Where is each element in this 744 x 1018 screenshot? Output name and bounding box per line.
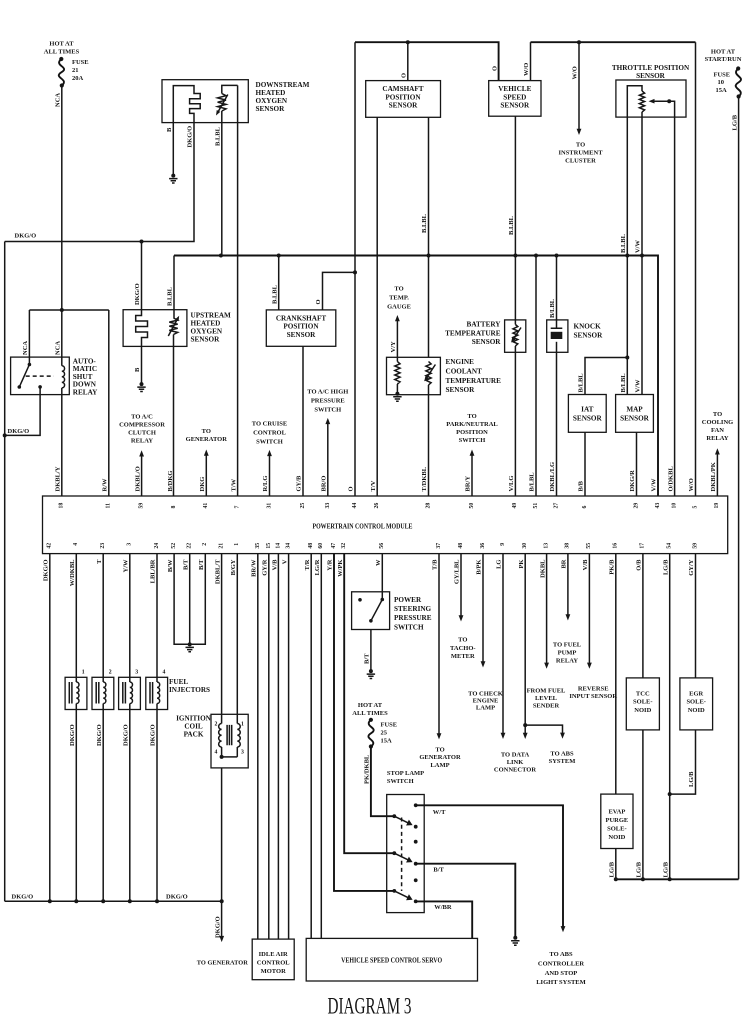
- svg-text:LAMP: LAMP: [430, 762, 449, 769]
- svg-text:TACHO-: TACHO-: [450, 645, 476, 652]
- svg-text:25: 25: [300, 503, 306, 509]
- svg-text:21: 21: [72, 67, 79, 74]
- svg-text:DKBL/Y: DKBL/Y: [55, 466, 62, 491]
- svg-text:T/DKBL: T/DKBL: [421, 466, 428, 491]
- svg-text:COMPRESSOR: COMPRESSOR: [119, 421, 165, 428]
- svg-text:GAUGE: GAUGE: [387, 304, 411, 311]
- svg-text:TO CRUISE: TO CRUISE: [252, 421, 287, 428]
- svg-text:B/GY: B/GY: [230, 559, 237, 575]
- svg-text:IAT: IAT: [581, 406, 593, 414]
- svg-text:POSITION: POSITION: [283, 323, 319, 331]
- svg-text:TEMPERATURE: TEMPERATURE: [446, 377, 502, 385]
- svg-text:15A: 15A: [716, 87, 728, 94]
- svg-text:TO DATA: TO DATA: [501, 751, 530, 758]
- svg-text:29: 29: [633, 503, 639, 509]
- svg-text:SENSOR: SENSOR: [256, 105, 286, 113]
- svg-text:HEATED: HEATED: [191, 320, 221, 328]
- svg-text:STEERING: STEERING: [394, 605, 432, 613]
- svg-text:T/B: T/B: [432, 559, 439, 570]
- svg-text:INPUT SENSOR: INPUT SENSOR: [569, 693, 617, 700]
- svg-text:4: 4: [163, 670, 166, 676]
- svg-text:2: 2: [202, 543, 208, 546]
- svg-text:13: 13: [543, 543, 549, 549]
- svg-text:EVAP: EVAP: [608, 809, 625, 816]
- svg-text:PK/DKBL: PK/DKBL: [364, 754, 371, 784]
- svg-text:21: 21: [218, 543, 224, 549]
- svg-text:1: 1: [82, 670, 85, 676]
- svg-text:42: 42: [47, 543, 53, 549]
- svg-text:W/O: W/O: [523, 63, 530, 76]
- svg-text:PUMP: PUMP: [558, 650, 577, 657]
- svg-text:54: 54: [667, 543, 673, 549]
- svg-text:T/W: T/W: [230, 478, 237, 491]
- svg-text:O/B: O/B: [636, 559, 643, 571]
- svg-text:Y/W: Y/W: [123, 559, 130, 573]
- svg-text:POWER: POWER: [394, 596, 422, 604]
- svg-text:PRESSURE: PRESSURE: [394, 614, 432, 622]
- svg-text:LG/B: LG/B: [662, 559, 669, 575]
- svg-text:CONTROLLER: CONTROLLER: [538, 960, 585, 967]
- svg-text:36: 36: [480, 543, 486, 549]
- svg-text:CONTROL: CONTROL: [253, 430, 287, 437]
- svg-text:POSITION: POSITION: [385, 93, 421, 101]
- svg-text:FROM FUEL: FROM FUEL: [527, 688, 566, 695]
- svg-text:W: W: [375, 559, 382, 566]
- svg-text:B.LBL: B.LBL: [215, 126, 222, 146]
- svg-text:GENERATOR: GENERATOR: [419, 754, 461, 761]
- svg-text:B/T: B/T: [182, 559, 189, 570]
- svg-text:52: 52: [171, 543, 177, 549]
- svg-text:PRESSURE: PRESSURE: [311, 397, 345, 404]
- svg-text:FUSE: FUSE: [381, 721, 398, 728]
- svg-text:TO: TO: [467, 413, 476, 420]
- svg-text:TEMP.: TEMP.: [389, 295, 409, 302]
- svg-text:B: B: [166, 127, 173, 132]
- svg-text:SPEED: SPEED: [503, 93, 526, 101]
- svg-text:O/DKBL: O/DKBL: [667, 466, 674, 492]
- svg-text:SENSOR: SENSOR: [573, 414, 603, 422]
- svg-text:DKG/O: DKG/O: [123, 724, 130, 746]
- svg-text:59: 59: [692, 543, 698, 549]
- svg-text:BR: BR: [561, 559, 568, 568]
- svg-text:23: 23: [100, 543, 106, 549]
- svg-text:43: 43: [655, 503, 661, 509]
- svg-text:B/LBL: B/LBL: [620, 373, 627, 393]
- svg-text:B.LBL: B.LBL: [271, 284, 278, 304]
- svg-text:B/LBL: B/LBL: [578, 373, 585, 393]
- svg-text:27: 27: [553, 503, 559, 509]
- svg-text:R/W: R/W: [102, 478, 109, 492]
- svg-text:B/PK: B/PK: [476, 560, 483, 575]
- svg-text:DKBL/T: DKBL/T: [214, 559, 221, 584]
- svg-text:26: 26: [374, 503, 380, 509]
- svg-text:DKG/O: DKG/O: [96, 724, 103, 746]
- svg-text:W/O: W/O: [688, 478, 695, 491]
- svg-text:BR/O: BR/O: [321, 476, 328, 492]
- svg-text:CRANKSHAFT: CRANKSHAFT: [276, 315, 327, 323]
- svg-text:B.LBL: B.LBL: [421, 213, 428, 233]
- svg-text:34: 34: [286, 543, 292, 549]
- svg-text:TO: TO: [576, 142, 585, 149]
- svg-text:GY/LBL: GY/LBL: [454, 559, 461, 584]
- svg-text:LIGHT SYSTEM: LIGHT SYSTEM: [536, 979, 586, 986]
- svg-text:DOWN: DOWN: [73, 381, 97, 389]
- svg-text:INSTRUMENT: INSTRUMENT: [558, 150, 603, 157]
- svg-text:REVERSE: REVERSE: [578, 685, 609, 692]
- svg-text:NCA: NCA: [55, 341, 62, 355]
- svg-text:GENERATOR: GENERATOR: [186, 436, 228, 443]
- svg-text:B/LBL: B/LBL: [529, 472, 536, 492]
- svg-text:37: 37: [436, 543, 442, 549]
- svg-text:LG/B: LG/B: [731, 114, 738, 130]
- svg-text:DKG/O: DKG/O: [69, 724, 76, 746]
- svg-text:25: 25: [381, 729, 388, 736]
- svg-text:B.LBL: B.LBL: [620, 233, 627, 253]
- svg-text:B/T: B/T: [198, 559, 205, 570]
- svg-text:PURGE: PURGE: [606, 817, 629, 824]
- svg-text:PARK/NEUTRAL: PARK/NEUTRAL: [446, 421, 498, 428]
- svg-text:HOT AT: HOT AT: [711, 48, 736, 55]
- svg-text:V/B: V/B: [271, 559, 278, 571]
- svg-text:LINK: LINK: [507, 759, 524, 766]
- svg-text:DKG/O: DKG/O: [43, 560, 50, 582]
- svg-text:SHUT: SHUT: [73, 373, 93, 381]
- svg-text:START/RUN: START/RUN: [705, 56, 742, 63]
- svg-text:DKBL/LG: DKBL/LG: [549, 462, 556, 492]
- svg-text:20A: 20A: [72, 75, 84, 82]
- svg-text:RELAY: RELAY: [706, 435, 728, 442]
- svg-text:LBL/BR: LBL/BR: [150, 559, 157, 583]
- svg-text:TO GENERATOR: TO GENERATOR: [197, 960, 248, 967]
- svg-text:FUEL: FUEL: [169, 678, 188, 686]
- svg-text:TO A/C HIGH: TO A/C HIGH: [307, 388, 348, 395]
- svg-text:9: 9: [500, 543, 506, 546]
- svg-text:BATTERY: BATTERY: [467, 321, 502, 329]
- svg-text:4: 4: [73, 543, 79, 546]
- svg-text:24: 24: [154, 543, 160, 549]
- svg-text:IGNITION: IGNITION: [176, 715, 212, 723]
- svg-text:V/W: V/W: [635, 240, 642, 254]
- svg-text:O: O: [401, 73, 408, 78]
- svg-text:41: 41: [203, 503, 209, 509]
- svg-text:SOLE-: SOLE-: [607, 825, 627, 832]
- svg-text:HEATED: HEATED: [256, 89, 286, 97]
- svg-text:POWERTRAIN CONTROL MODULE: POWERTRAIN CONTROL MODULE: [313, 523, 413, 531]
- svg-text:TO FUEL: TO FUEL: [553, 642, 582, 649]
- svg-text:OXYGEN: OXYGEN: [191, 328, 223, 336]
- svg-text:DOWNSTREAM: DOWNSTREAM: [256, 81, 310, 89]
- svg-text:VEHICLE: VEHICLE: [498, 85, 531, 93]
- svg-text:5: 5: [692, 506, 698, 509]
- svg-text:W/PK: W/PK: [337, 560, 344, 577]
- svg-text:T/R: T/R: [304, 559, 311, 570]
- svg-text:SENSOR: SENSOR: [636, 72, 666, 80]
- svg-text:SWITCH: SWITCH: [256, 439, 283, 446]
- svg-text:V: V: [282, 559, 289, 564]
- svg-text:TO A/C: TO A/C: [131, 413, 153, 420]
- svg-text:SOLE-: SOLE-: [686, 699, 706, 706]
- svg-text:8: 8: [171, 506, 177, 509]
- svg-text:1: 1: [234, 543, 240, 546]
- svg-text:DKG/O: DKG/O: [214, 916, 221, 938]
- svg-text:3: 3: [135, 670, 138, 676]
- svg-text:COOLANT: COOLANT: [446, 367, 483, 375]
- svg-text:CLUSTER: CLUSTER: [565, 158, 596, 165]
- svg-text:48: 48: [458, 543, 464, 549]
- svg-text:3: 3: [127, 543, 133, 546]
- svg-text:PK/B: PK/B: [609, 559, 616, 575]
- svg-text:TO: TO: [458, 637, 467, 644]
- svg-text:W/T: W/T: [433, 809, 446, 816]
- svg-text:HOT AT: HOT AT: [49, 41, 74, 48]
- svg-text:UPSTREAM: UPSTREAM: [191, 312, 232, 320]
- svg-text:33: 33: [325, 503, 331, 509]
- svg-text:HOT AT: HOT AT: [358, 702, 383, 709]
- svg-text:30: 30: [522, 543, 528, 549]
- svg-text:DKG/O: DKG/O: [15, 233, 37, 240]
- svg-text:ALL TIMES: ALL TIMES: [352, 710, 388, 717]
- svg-text:PK: PK: [518, 560, 525, 569]
- svg-text:O: O: [315, 299, 322, 304]
- svg-text:SWITCH: SWITCH: [387, 778, 414, 785]
- svg-text:THROTTLE POSITION: THROTTLE POSITION: [612, 64, 690, 72]
- svg-text:R/LG: R/LG: [262, 476, 269, 492]
- svg-text:MATIC: MATIC: [73, 365, 97, 373]
- svg-text:COIL: COIL: [184, 723, 203, 731]
- svg-text:V/W: V/W: [635, 379, 642, 393]
- svg-text:15: 15: [266, 543, 272, 549]
- svg-text:AUTO-: AUTO-: [73, 357, 97, 365]
- svg-text:SENDER: SENDER: [533, 703, 560, 710]
- svg-text:19: 19: [714, 503, 720, 509]
- svg-text:TCC: TCC: [636, 690, 650, 697]
- svg-text:SENSOR: SENSOR: [446, 386, 476, 394]
- svg-text:B.LBL: B.LBL: [508, 215, 515, 235]
- svg-text:NCA: NCA: [55, 93, 62, 107]
- svg-text:B/W: B/W: [167, 559, 174, 572]
- svg-text:LG/R: LG/R: [314, 559, 321, 575]
- svg-text:GY/Y: GY/Y: [688, 559, 695, 576]
- svg-text:POSITION: POSITION: [456, 429, 488, 436]
- svg-text:COOLING: COOLING: [702, 419, 733, 426]
- svg-text:NOID: NOID: [608, 834, 625, 841]
- svg-text:DKG/O: DKG/O: [134, 283, 141, 305]
- svg-text:11: 11: [106, 503, 112, 509]
- svg-text:SWITCH: SWITCH: [394, 623, 424, 631]
- svg-text:V/B: V/B: [582, 559, 589, 571]
- svg-text:ENGINE: ENGINE: [473, 698, 499, 705]
- svg-text:SENSOR: SENSOR: [500, 102, 530, 110]
- svg-text:DKBL/PK: DKBL/PK: [710, 462, 717, 491]
- svg-text:15A: 15A: [381, 737, 393, 744]
- svg-text:DKG/O: DKG/O: [150, 724, 157, 746]
- svg-text:RELAY: RELAY: [73, 389, 98, 397]
- svg-text:31: 31: [266, 503, 272, 509]
- svg-text:FUSE: FUSE: [72, 59, 89, 66]
- svg-text:SENSOR: SENSOR: [472, 338, 502, 346]
- svg-text:35: 35: [255, 543, 261, 549]
- svg-text:W/DKBL: W/DKBL: [69, 559, 76, 586]
- svg-text:50: 50: [469, 503, 475, 509]
- svg-text:1: 1: [241, 722, 244, 728]
- svg-text:W/O: W/O: [572, 66, 579, 79]
- svg-text:DKG: DKG: [199, 477, 206, 492]
- svg-text:SYSTEM: SYSTEM: [549, 758, 576, 765]
- svg-text:PACK: PACK: [184, 731, 204, 739]
- svg-text:SENSOR: SENSOR: [389, 102, 419, 110]
- svg-text:B/T: B/T: [364, 653, 371, 664]
- svg-text:TO ABS: TO ABS: [549, 951, 573, 958]
- svg-text:LG/B: LG/B: [609, 861, 616, 877]
- svg-text:VEHICLE SPEED CONTROL SERVO: VEHICLE SPEED CONTROL SERVO: [341, 956, 442, 964]
- svg-text:FUSE: FUSE: [714, 71, 731, 78]
- svg-text:AND STOP: AND STOP: [545, 970, 578, 977]
- svg-text:V/W: V/W: [651, 478, 658, 492]
- svg-text:LEVEL: LEVEL: [535, 695, 558, 702]
- svg-text:CONTROL: CONTROL: [257, 959, 291, 966]
- svg-text:GY/B: GY/B: [296, 475, 303, 492]
- svg-text:Y/R: Y/R: [327, 559, 334, 571]
- svg-text:38: 38: [565, 543, 571, 549]
- svg-text:55: 55: [586, 543, 592, 549]
- svg-text:SENSOR: SENSOR: [574, 332, 604, 340]
- svg-text:TEMPERATURE: TEMPERATURE: [445, 329, 501, 337]
- svg-text:O: O: [348, 486, 355, 491]
- svg-text:TO: TO: [394, 286, 403, 293]
- svg-text:OXYGEN: OXYGEN: [256, 97, 288, 105]
- svg-text:TO ABS: TO ABS: [550, 750, 574, 757]
- svg-text:3: 3: [241, 750, 244, 756]
- svg-text:DKG/O: DKG/O: [12, 894, 34, 901]
- svg-text:EGR: EGR: [689, 690, 703, 697]
- svg-text:LG: LG: [496, 560, 503, 569]
- svg-text:48: 48: [308, 543, 314, 549]
- svg-text:6: 6: [582, 506, 588, 509]
- svg-text:B/LBL: B/LBL: [549, 298, 556, 318]
- svg-text:TO CHECK: TO CHECK: [468, 691, 503, 698]
- svg-text:44: 44: [352, 503, 358, 509]
- svg-text:7: 7: [234, 506, 240, 509]
- svg-text:LG/B: LG/B: [688, 771, 695, 787]
- svg-text:LG/B: LG/B: [662, 861, 669, 877]
- svg-text:KNOCK: KNOCK: [574, 323, 602, 331]
- svg-text:28: 28: [425, 503, 431, 509]
- svg-text:T: T: [96, 559, 103, 564]
- svg-text:10: 10: [718, 79, 725, 86]
- svg-text:ENGINE: ENGINE: [446, 358, 475, 366]
- svg-text:BR/W: BR/W: [251, 559, 258, 577]
- svg-text:2: 2: [215, 722, 218, 728]
- svg-text:B/T: B/T: [433, 866, 444, 873]
- svg-text:B/DKG: B/DKG: [167, 471, 174, 492]
- svg-text:49: 49: [512, 503, 518, 509]
- svg-text:MOTOR: MOTOR: [261, 968, 286, 975]
- svg-text:14: 14: [275, 543, 281, 549]
- svg-text:ALL TIMES: ALL TIMES: [44, 49, 80, 56]
- svg-text:DKBL/O: DKBL/O: [134, 466, 141, 491]
- svg-text:60: 60: [318, 543, 324, 549]
- svg-text:RELAY: RELAY: [556, 657, 578, 664]
- svg-text:DKG/O: DKG/O: [8, 428, 30, 435]
- svg-text:SWITCH: SWITCH: [314, 406, 341, 413]
- svg-text:GY/R: GY/R: [262, 559, 269, 576]
- svg-text:STOP LAMP: STOP LAMP: [387, 770, 424, 777]
- svg-text:INJECTORS: INJECTORS: [169, 686, 210, 694]
- svg-text:17: 17: [640, 543, 646, 549]
- svg-text:CONNECTOR: CONNECTOR: [494, 766, 536, 773]
- svg-text:DKG/R: DKG/R: [629, 470, 636, 492]
- svg-text:16: 16: [613, 543, 619, 549]
- svg-text:V/Y: V/Y: [390, 341, 397, 353]
- svg-text:NOID: NOID: [634, 707, 651, 714]
- svg-text:DKG/O: DKG/O: [166, 894, 188, 901]
- svg-text:18: 18: [59, 503, 65, 509]
- svg-text:SENSOR: SENSOR: [620, 414, 650, 422]
- svg-text:10: 10: [671, 503, 677, 509]
- svg-text:32: 32: [341, 543, 347, 549]
- svg-text:59: 59: [138, 503, 144, 509]
- svg-text:MAP: MAP: [626, 406, 643, 414]
- svg-text:SENSOR: SENSOR: [287, 331, 317, 339]
- svg-text:TO: TO: [202, 428, 211, 435]
- svg-text:DKG/O: DKG/O: [187, 126, 194, 148]
- svg-text:T/V: T/V: [370, 480, 377, 491]
- svg-text:TO: TO: [435, 747, 444, 754]
- svg-text:DKBL: DKBL: [539, 559, 546, 578]
- svg-text:FAN: FAN: [711, 427, 724, 434]
- svg-text:TO: TO: [713, 411, 722, 418]
- svg-text:LAMP: LAMP: [476, 705, 495, 712]
- svg-text:B/B: B/B: [578, 480, 585, 491]
- svg-text:BR/Y: BR/Y: [465, 476, 472, 492]
- svg-text:4: 4: [215, 750, 218, 756]
- svg-text:NOID: NOID: [688, 707, 705, 714]
- svg-text:SENSOR: SENSOR: [191, 336, 221, 344]
- svg-text:51: 51: [533, 503, 539, 509]
- svg-text:CLUTCH: CLUTCH: [128, 429, 156, 436]
- svg-text:47: 47: [331, 543, 337, 549]
- svg-text:NCA: NCA: [22, 341, 29, 355]
- svg-text:CAMSHAFT: CAMSHAFT: [382, 85, 423, 93]
- svg-text:SWITCH: SWITCH: [459, 437, 486, 444]
- svg-text:METER: METER: [451, 653, 475, 660]
- svg-text:LG/B: LG/B: [636, 861, 643, 877]
- svg-text:W/BR: W/BR: [434, 904, 452, 911]
- svg-text:56: 56: [379, 543, 385, 549]
- svg-text:2: 2: [109, 670, 112, 676]
- svg-text:V/LG: V/LG: [508, 476, 515, 492]
- svg-text:B: B: [134, 367, 141, 372]
- svg-text:IDLE AIR: IDLE AIR: [259, 951, 288, 958]
- svg-text:O: O: [491, 66, 498, 71]
- svg-text:SOLE-: SOLE-: [633, 699, 653, 706]
- svg-text:DIAGRAM 3: DIAGRAM 3: [328, 994, 412, 1018]
- svg-text:B.LBL: B.LBL: [167, 286, 174, 306]
- svg-text:RELAY: RELAY: [131, 437, 153, 444]
- svg-text:22: 22: [187, 543, 193, 549]
